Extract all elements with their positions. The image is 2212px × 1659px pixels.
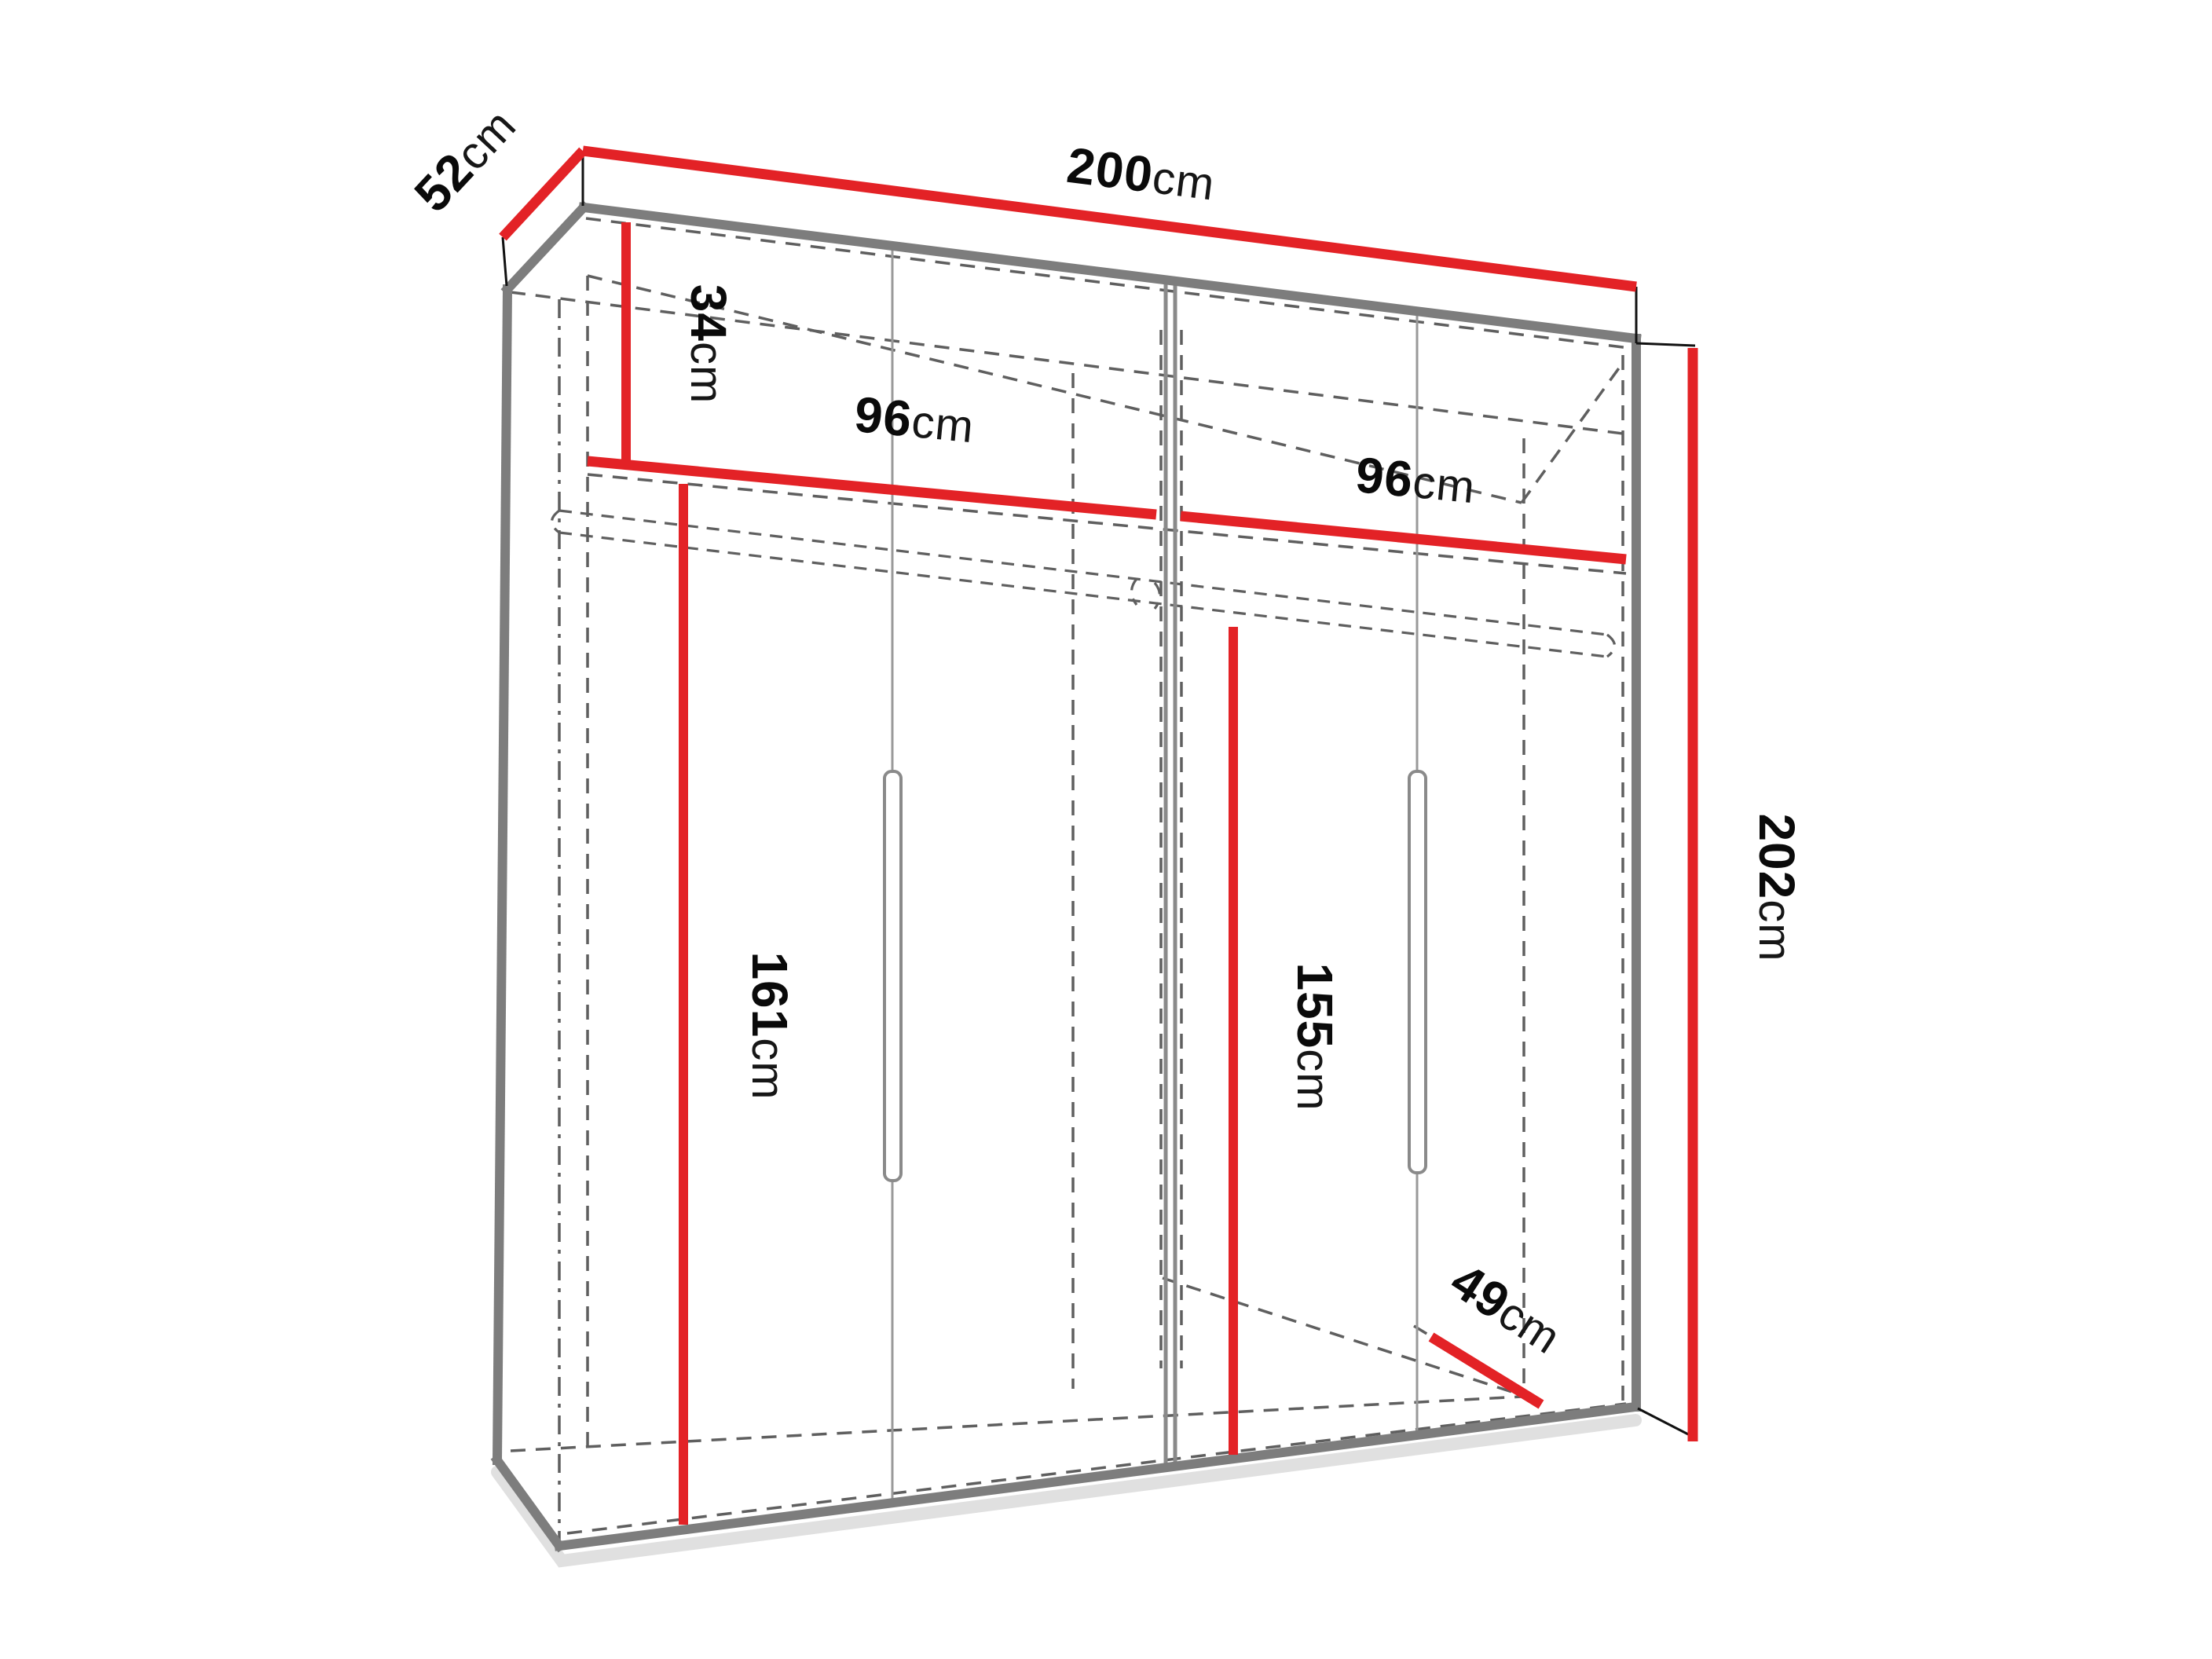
- label-right-section-width: 96cm: [1353, 446, 1478, 514]
- wardrobe-dimension-diagram: 200cm 52cm 34cm 96cm 96cm 202cm 161cm 15…: [0, 0, 2212, 1659]
- label-interior-depth: 49cm: [1441, 1252, 1572, 1364]
- label-left-section-width: 96cm: [852, 386, 977, 453]
- diagram-canvas: 200cm 52cm 34cm 96cm 96cm 202cm 161cm 15…: [0, 0, 2212, 1659]
- right-door-handle: [1409, 771, 1426, 1173]
- label-right-interior-height: 155cm: [1287, 962, 1343, 1111]
- label-overall-depth: 52cm: [404, 97, 527, 223]
- label-overall-height: 202cm: [1749, 813, 1805, 961]
- dimension-labels: 200cm 52cm 34cm 96cm 96cm 202cm 161cm 15…: [404, 97, 1805, 1365]
- label-left-interior-height: 161cm: [742, 951, 798, 1100]
- dim-line-shelf-left-96: [588, 461, 1156, 515]
- label-overall-width: 200cm: [1064, 137, 1218, 211]
- label-top-shelf-height: 34cm: [680, 284, 737, 405]
- carcass-outline: [497, 207, 1636, 1546]
- left-door-handle: [884, 771, 901, 1181]
- door-handles: [884, 771, 1426, 1181]
- central-partition: [1166, 280, 1175, 1466]
- hanging-rod: [552, 511, 1615, 657]
